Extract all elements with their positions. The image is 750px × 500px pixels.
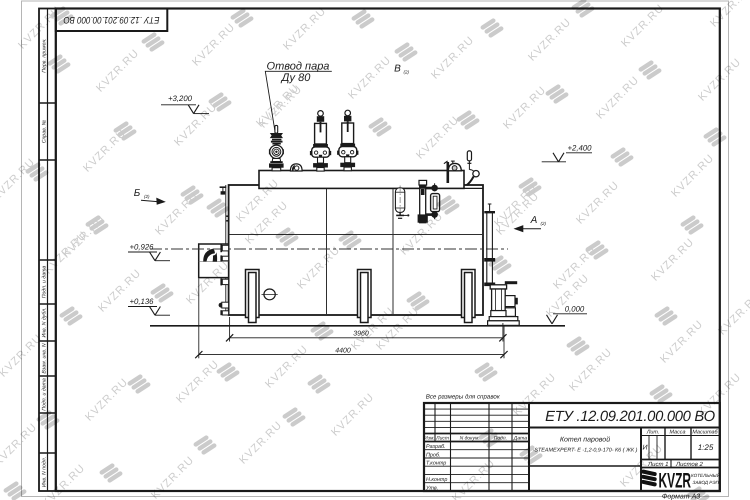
svg-text:Листов 2: Листов 2	[675, 461, 704, 468]
svg-text:Н.контр: Н.контр	[426, 477, 447, 483]
svg-text:Масштаб: Масштаб	[692, 430, 718, 436]
svg-text:ЕТУ .12.09.201.00.000 ВО: ЕТУ .12.09.201.00.000 ВО	[63, 14, 160, 25]
svg-text:КОТЕЛЬНЫЙ: КОТЕЛЬНЫЙ	[691, 472, 721, 478]
svg-text:Ду 80: Ду 80	[280, 72, 312, 84]
svg-text:Утв.: Утв.	[425, 485, 438, 491]
svg-text:Котел паровой: Котел паровой	[560, 436, 610, 444]
svg-text:4400: 4400	[335, 347, 351, 354]
svg-text:Перв. примен.: Перв. примен.	[42, 38, 48, 72]
svg-text:+0,926: +0,926	[129, 242, 154, 251]
svg-text:N докум.: N докум.	[460, 436, 480, 442]
svg-text:Подп. и дата: Подп. и дата	[42, 378, 48, 411]
svg-text:Инв. N подл.: Инв. N подл.	[42, 457, 48, 487]
svg-text:Проб.: Проб.	[426, 453, 440, 459]
svg-text:Масса: Масса	[670, 430, 686, 436]
svg-text:Все размеры для справок: Все размеры для справок	[426, 393, 501, 400]
svg-text:(2): (2)	[404, 70, 410, 75]
svg-text:А: А	[530, 215, 538, 226]
svg-text:1:25: 1:25	[698, 443, 714, 452]
svg-text:KVZR: KVZR	[659, 470, 692, 493]
svg-text:Т.контр: Т.контр	[426, 461, 446, 467]
svg-text:Б: Б	[134, 188, 141, 199]
svg-text:Отвод пара: Отвод пара	[267, 61, 330, 73]
svg-text:В: В	[394, 64, 401, 75]
svg-text:Разраб.: Разраб.	[426, 444, 446, 450]
svg-text:ЕТУ .12.09.201.00.000 ВО: ЕТУ .12.09.201.00.000 ВО	[545, 409, 716, 425]
svg-text:Справ. №: Справ. №	[42, 119, 48, 143]
svg-text:(2): (2)	[144, 194, 150, 199]
svg-text:+0,136: +0,136	[129, 297, 154, 306]
svg-text:Инв. N дубл.: Инв. N дубл.	[42, 307, 48, 337]
svg-text:Изм.: Изм.	[424, 436, 435, 442]
svg-text:Взам. инв. N: Взам. инв. N	[42, 343, 48, 373]
svg-text:Лист: Лист	[435, 436, 449, 442]
svg-text:Лит.: Лит.	[646, 430, 660, 436]
svg-text:Дата: Дата	[513, 436, 527, 442]
svg-text:+3,200: +3,200	[168, 94, 193, 103]
svg-text:ЗАВОД РЭП: ЗАВОД РЭП	[693, 480, 720, 485]
svg-text:0,000: 0,000	[565, 304, 585, 313]
svg-text:+2,400: +2,400	[567, 144, 592, 153]
svg-text:(2): (2)	[541, 221, 547, 226]
svg-text:-STEAMEXPERT- Е -1,2-0,9-170-: -STEAMEXPERT- Е -1,2-0,9-170- К6 ( ЖК )	[533, 448, 638, 454]
